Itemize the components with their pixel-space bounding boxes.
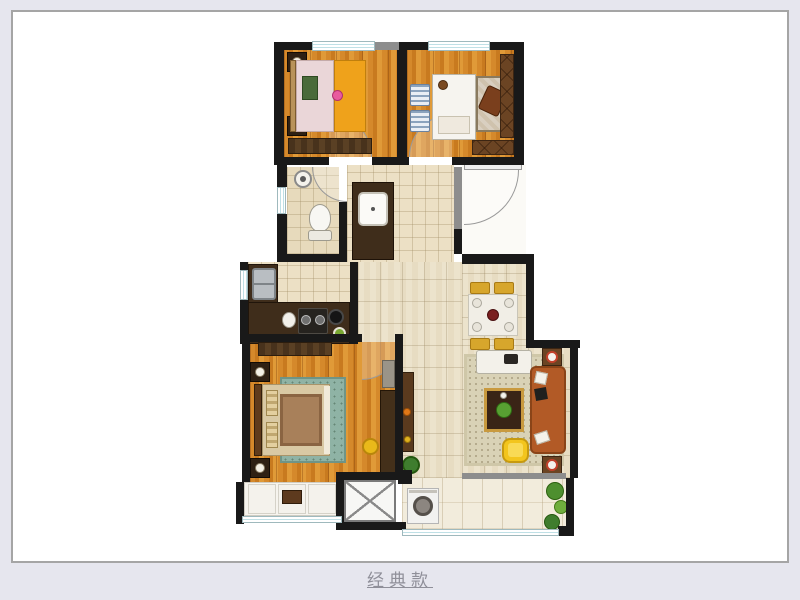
- wall: [240, 334, 362, 342]
- wall: [558, 526, 574, 536]
- wall: [570, 348, 578, 478]
- wall: [462, 254, 534, 264]
- wall: [526, 340, 580, 348]
- cabinet: [472, 140, 514, 155]
- wall: [277, 165, 287, 187]
- toilet-bowl: [309, 204, 331, 232]
- wardrobe: [382, 360, 395, 388]
- wall: [336, 522, 406, 530]
- bed-headboard: [254, 384, 262, 456]
- balcony-plant-icon: [546, 482, 564, 500]
- place-setting: [472, 298, 482, 308]
- decor-vase: [403, 408, 411, 416]
- sofa-pillow: [534, 387, 548, 401]
- armchair-striped: [410, 110, 430, 132]
- caption-link[interactable]: 经典款: [0, 566, 800, 591]
- bed-pillow: [302, 76, 318, 100]
- sofa-pillow: [534, 371, 548, 385]
- wall: [395, 334, 403, 474]
- table-cup: [500, 392, 507, 399]
- wall: [274, 42, 284, 165]
- wall: [242, 342, 250, 482]
- wall: [514, 42, 524, 165]
- lamp-icon: [255, 367, 265, 377]
- desk-papers: [438, 116, 470, 134]
- wall: [454, 229, 462, 254]
- armchair-striped: [410, 84, 430, 106]
- wardrobe: [500, 54, 514, 138]
- bay-cushion: [248, 484, 276, 514]
- wall: [339, 202, 347, 254]
- dresser: [258, 342, 332, 356]
- dining-chair: [470, 338, 490, 350]
- burner-icon: [301, 315, 311, 325]
- wall: [397, 50, 407, 165]
- toilet-tank: [308, 230, 332, 241]
- wall: [277, 254, 347, 262]
- place-setting: [504, 298, 514, 308]
- wall: [452, 157, 524, 165]
- window: [277, 187, 286, 214]
- bed-cushion: [332, 90, 343, 101]
- desk-plant-icon: [438, 80, 448, 90]
- image-card-panel: [11, 10, 789, 563]
- washer-door-icon: [413, 496, 433, 516]
- kitchen-sink-divider: [254, 283, 274, 285]
- balcony-window-glass: [402, 529, 559, 536]
- table-lamp-icon: [546, 351, 558, 363]
- decor-flower: [404, 436, 411, 443]
- faucet-icon: [371, 207, 375, 211]
- window: [312, 41, 375, 51]
- table-plant-icon: [496, 402, 512, 418]
- wall: [350, 262, 358, 344]
- bed-blanket: [280, 394, 322, 446]
- table-lamp-icon: [546, 459, 558, 471]
- washer-panel: [409, 490, 437, 493]
- bed-pillow: [266, 390, 278, 416]
- desk-chair-yellow: [362, 438, 379, 455]
- wall: [274, 157, 329, 165]
- floor-plan: [232, 32, 588, 544]
- bed-pillow: [266, 422, 278, 448]
- wall: [526, 262, 534, 340]
- burner-icon: [315, 315, 325, 325]
- wall: [240, 262, 248, 270]
- wall-secondary: [462, 473, 566, 479]
- duct-shaft-box: [344, 480, 396, 522]
- bay-tray: [282, 490, 302, 504]
- dining-chair: [470, 282, 490, 294]
- wall-secondary: [454, 167, 462, 229]
- place-setting: [504, 322, 514, 332]
- window: [240, 270, 248, 300]
- bay-cushion: [308, 484, 336, 514]
- dining-chair: [494, 282, 514, 294]
- armchair-seat: [508, 443, 523, 457]
- chaise-cushion: [504, 354, 518, 364]
- kettle-icon: [282, 312, 296, 328]
- dresser: [288, 138, 372, 154]
- place-setting: [472, 322, 482, 332]
- desk: [380, 390, 396, 476]
- dining-chair: [494, 338, 514, 350]
- window: [428, 41, 490, 51]
- lamp-icon: [255, 463, 265, 473]
- wall: [336, 472, 402, 480]
- wall: [372, 157, 409, 165]
- wall-secondary: [375, 42, 399, 50]
- shower-drain: [300, 176, 306, 182]
- wok-pan: [328, 309, 344, 325]
- bed-sheet-fold: [324, 386, 330, 454]
- center-bowl: [487, 309, 499, 321]
- wall: [399, 42, 428, 50]
- bay-window-glass: [242, 516, 342, 523]
